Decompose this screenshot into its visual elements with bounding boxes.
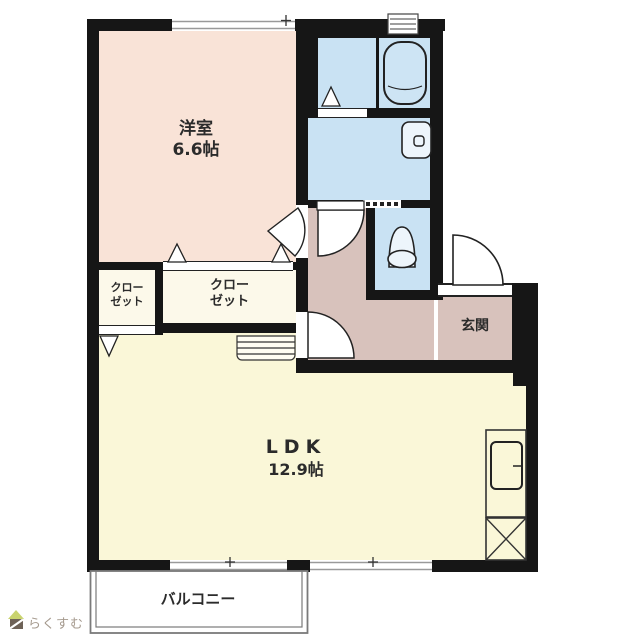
toilet-room (375, 208, 430, 290)
outer-wall-left (87, 19, 99, 572)
ldk-door-opening (296, 312, 308, 358)
hallway-lower (308, 300, 434, 360)
outer-wall-right (526, 373, 538, 572)
rakusumu-logo-text: らくすむ (28, 613, 84, 632)
closet-large-door (163, 261, 293, 271)
closet-right-line1: クロー (163, 278, 296, 294)
washroom (308, 118, 430, 200)
closet-large-bottom-wall (163, 323, 296, 333)
closet-left-label: クロー ゼット (99, 281, 155, 309)
entrance-name: 玄関 (438, 318, 512, 336)
entrance-door-arc (453, 235, 503, 285)
hallway-upper (308, 208, 366, 300)
entrance-right-wall (512, 283, 538, 360)
balcony-label: バルコニー (108, 590, 288, 609)
rakusumu-logo-icon (8, 610, 24, 629)
balcony-name: バルコニー (108, 590, 288, 609)
western-room-area: 6.6帖 (126, 140, 266, 161)
entrance-label: 玄関 (438, 318, 512, 336)
floor-plan: 洋室 6.6帖 クロー ゼット クロー ゼット 玄関 LDK 12.9帖 バルコ… (0, 0, 640, 640)
closet-right-label: クロー ゼット (163, 278, 296, 311)
western-room-name: 洋室 (126, 119, 266, 140)
entrance-door-sill (438, 283, 512, 297)
closet-left-line1: クロー (99, 281, 155, 295)
toilet-left-wall (366, 208, 375, 290)
bathroom-divider-wall (376, 38, 379, 108)
closet-right-line2: ゼット (163, 294, 296, 310)
closet-left-line2: ゼット (99, 295, 155, 309)
bathroom-door (318, 108, 367, 118)
hall-bottom-wall (296, 360, 538, 373)
closet-divider-wall (155, 262, 163, 335)
closet-small-door (99, 325, 155, 335)
western-room-door-opening (296, 205, 308, 258)
western-room-label: 洋室 6.6帖 (126, 119, 266, 162)
outer-wall-top (87, 19, 445, 31)
hall-left-wall-a (296, 258, 308, 312)
bathroom (318, 38, 430, 108)
ldk-label: LDK 12.9帖 (216, 436, 376, 480)
ldk-name: LDK (216, 436, 376, 460)
ldk-area: 12.9帖 (216, 460, 376, 480)
outer-wall-bottom (87, 560, 538, 572)
